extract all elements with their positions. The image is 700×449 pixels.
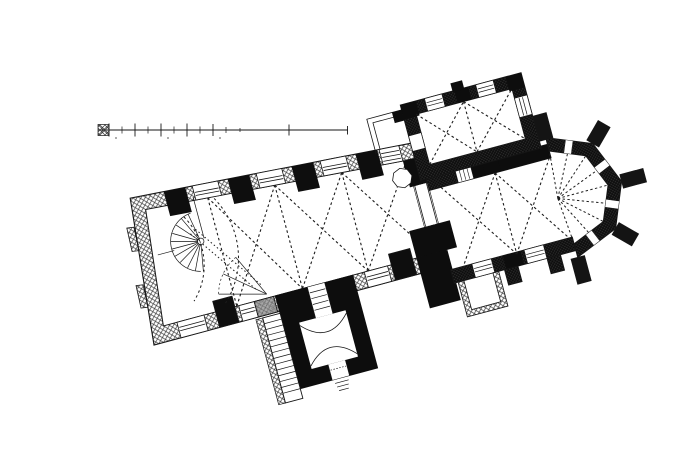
window-opening	[606, 200, 619, 208]
engraving-sheet: Engraved ground plan of a Gothic church …	[0, 0, 700, 449]
window-opening	[564, 141, 572, 154]
floor-plan-svg: Engraved ground plan of a Gothic church …	[0, 0, 700, 449]
